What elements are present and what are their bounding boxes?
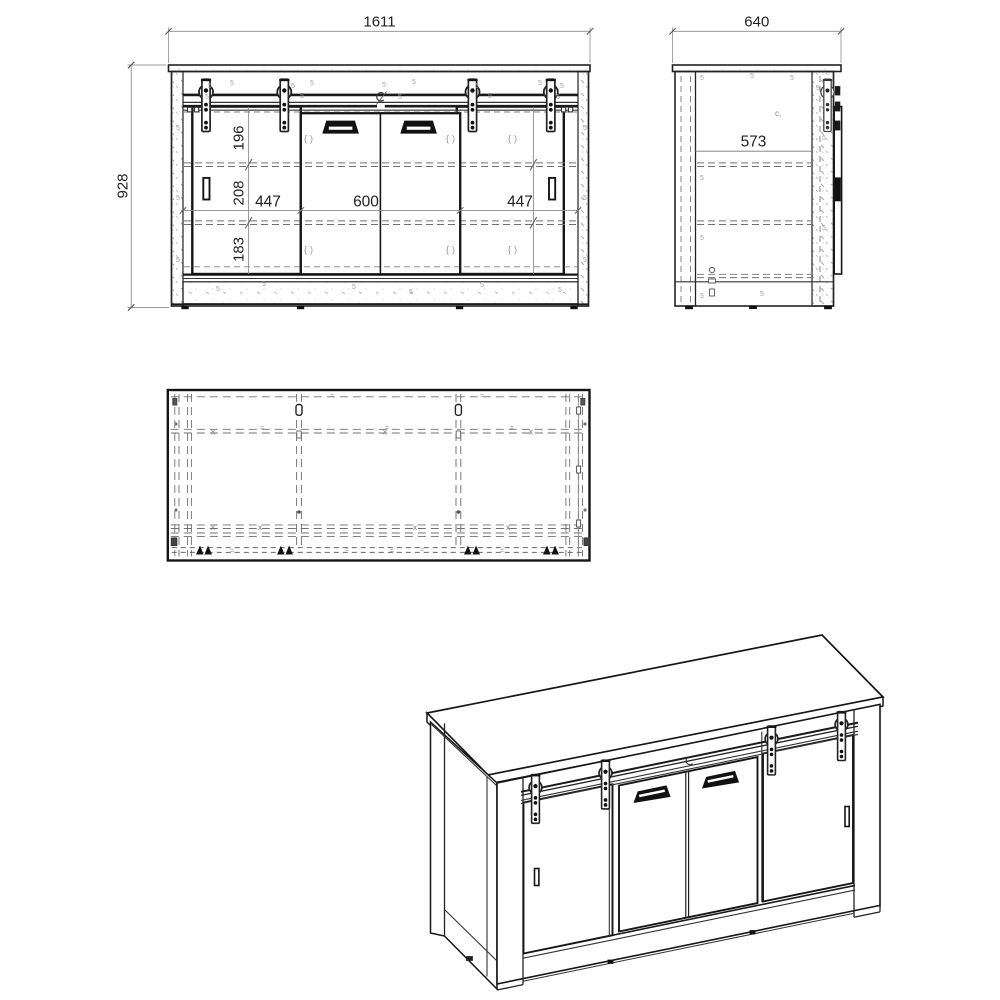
svg-text:=: = [390, 548, 394, 555]
svg-text:5: 5 [583, 195, 587, 202]
svg-text:): ) [452, 134, 455, 144]
svg-text:640: 640 [744, 14, 769, 31]
svg-text:1611: 1611 [363, 14, 395, 31]
svg-text:x: x [258, 523, 262, 532]
svg-text:183: 183 [231, 237, 248, 262]
svg-text:=: = [385, 425, 389, 432]
svg-text:5: 5 [310, 80, 314, 87]
svg-text:573: 573 [741, 134, 767, 151]
svg-text:x: x [413, 523, 417, 532]
svg-text:{: { [304, 134, 307, 144]
svg-text:5: 5 [790, 75, 794, 82]
svg-text:5: 5 [176, 125, 180, 132]
svg-text:=: = [345, 547, 349, 554]
svg-text:5: 5 [560, 83, 564, 90]
svg-text:447: 447 [255, 194, 281, 211]
svg-text:5: 5 [176, 257, 180, 264]
svg-text:5: 5 [558, 287, 562, 294]
svg-text:5: 5 [700, 235, 704, 242]
svg-text:5: 5 [480, 282, 484, 289]
svg-text:{: { [304, 245, 307, 255]
svg-text:x: x [529, 428, 533, 437]
svg-text:5: 5 [700, 175, 704, 182]
svg-text:5: 5 [822, 135, 826, 142]
svg-text:5: 5 [750, 73, 754, 80]
svg-text:5: 5 [262, 281, 266, 288]
svg-text:x: x [211, 523, 215, 532]
svg-text:=: = [480, 393, 484, 400]
svg-text:928: 928 [115, 173, 132, 198]
svg-text:{: { [446, 134, 449, 144]
svg-text:600: 600 [353, 194, 379, 211]
svg-text:5: 5 [398, 94, 402, 101]
svg-text:x: x [506, 523, 510, 532]
svg-text:5: 5 [176, 195, 180, 202]
svg-text:=: = [510, 425, 514, 432]
svg-text:196: 196 [231, 125, 248, 150]
svg-text:): ) [310, 245, 313, 255]
svg-text:5: 5 [760, 291, 764, 298]
svg-text:5: 5 [291, 83, 295, 90]
svg-text:5: 5 [412, 79, 416, 86]
svg-text:{: { [508, 245, 511, 255]
svg-text:): ) [514, 134, 517, 144]
svg-text:=: = [500, 548, 504, 555]
svg-text:x: x [211, 428, 215, 437]
svg-text:=: = [260, 425, 264, 432]
svg-text:=: = [330, 393, 334, 400]
svg-text:5: 5 [700, 293, 704, 300]
svg-text:5: 5 [409, 289, 413, 296]
svg-text:{: { [446, 245, 449, 255]
svg-text:5: 5 [556, 94, 560, 101]
svg-text:5: 5 [208, 83, 212, 90]
svg-text:5: 5 [475, 83, 479, 90]
svg-text:5: 5 [538, 80, 542, 87]
svg-text:5: 5 [822, 225, 826, 232]
svg-text:): ) [452, 245, 455, 255]
svg-text:{: { [508, 134, 511, 144]
svg-text:5: 5 [488, 93, 492, 100]
svg-text:5: 5 [583, 257, 587, 264]
svg-text:5: 5 [382, 82, 386, 89]
svg-text:5: 5 [300, 93, 304, 100]
svg-text:5: 5 [216, 286, 220, 293]
svg-text:5: 5 [352, 284, 356, 291]
svg-text:5: 5 [230, 80, 234, 87]
svg-text:=: = [230, 548, 234, 555]
svg-text:c,: c, [775, 109, 781, 118]
svg-text:): ) [310, 134, 313, 144]
svg-text:5: 5 [583, 125, 587, 132]
svg-text:5: 5 [700, 75, 704, 82]
svg-text:5: 5 [816, 85, 820, 92]
svg-text:): ) [514, 245, 517, 255]
svg-text:=: = [420, 547, 424, 554]
svg-text:447: 447 [507, 194, 533, 211]
svg-text:208: 208 [231, 180, 248, 205]
svg-text:5: 5 [205, 94, 209, 101]
